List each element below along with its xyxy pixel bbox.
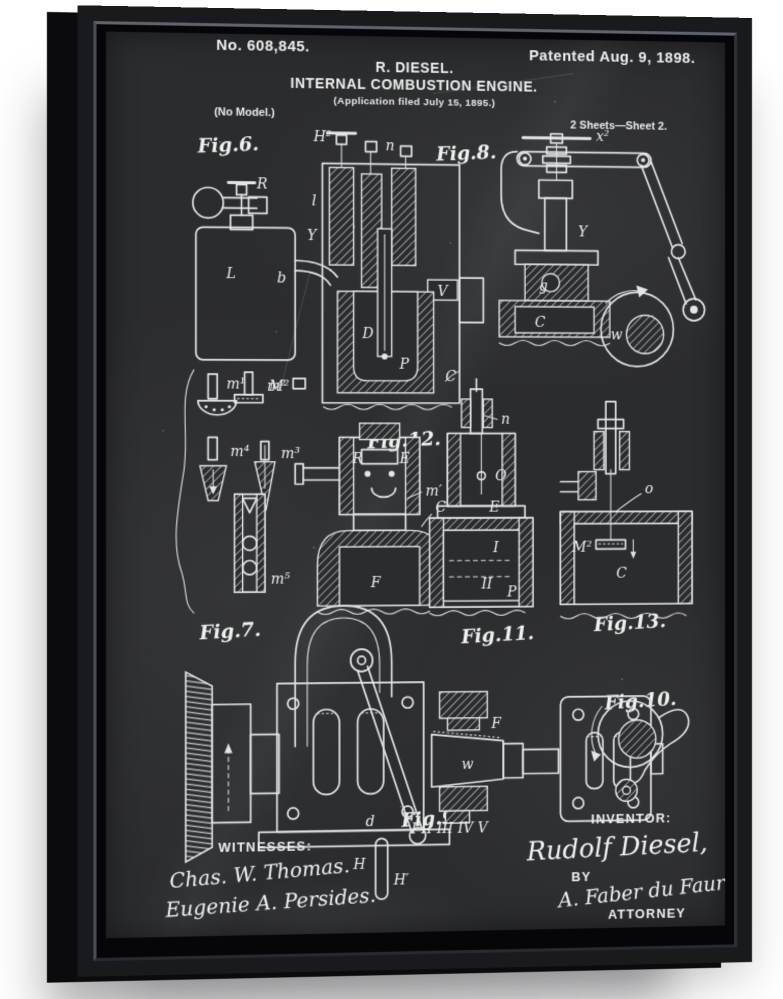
fig10-drawing (591, 700, 689, 801)
patent-number: No. 608,845. (216, 37, 310, 56)
fig13-part-o: o (645, 482, 653, 498)
fig8-part-g: g (539, 279, 548, 295)
fig11-part-E: E (488, 500, 499, 516)
patent-inventor-name: R. DIESEL. (375, 59, 453, 77)
fig6-part-D: D (361, 326, 373, 342)
fig13-drawing: o M² C (561, 401, 692, 619)
fig6-part-b: b (277, 271, 286, 287)
fig7-caption: Fig.7. (198, 618, 261, 644)
fig6-part-L: L (225, 266, 235, 282)
fig13-part-C: C (616, 566, 627, 582)
witnesses-heading: WITNESSES: (218, 839, 312, 856)
fig11-part-n: n (501, 411, 510, 427)
no-model-note: (No Model.) (214, 106, 275, 119)
fig7-drawing: m¹ m² m⁴ m³ (176, 370, 300, 613)
fig8-part-Y: Y (578, 225, 589, 241)
fig9-part-w: w (461, 756, 473, 772)
inventor-heading: INVENTOR: (591, 811, 671, 827)
chalkboard-canvas: No. 608,845. Patented Aug. 9, 1898. R. D… (106, 32, 725, 939)
fig11-part-II: II (480, 577, 492, 593)
fig9-part-H: H (352, 857, 366, 874)
fig11-part-O: O (495, 468, 507, 484)
fig7-part-m5: m⁵ (271, 572, 290, 588)
patent-title: INTERNAL COMBUSTION ENGINE. (290, 74, 537, 94)
by-label: BY (571, 869, 591, 884)
inventor-signature: Rudolf Diesel, (525, 828, 708, 868)
sheet-note: 2 Sheets—Sheet 2. (570, 119, 667, 132)
fig8-caption: Fig.8. (435, 141, 497, 166)
fig11-part-P: P (506, 584, 517, 600)
fig9-part-d: d (366, 814, 375, 830)
fig8-part-w: w (611, 327, 623, 343)
fig12-part-m-prime: m′ (426, 484, 443, 500)
fig6-part-P: P (399, 356, 410, 372)
fig9-part-numerals: I II III IV V (410, 820, 489, 837)
patent-application-line: (Application filed July 15, 1895.) (334, 95, 496, 109)
fig6-part-C: C (446, 369, 457, 385)
fig13-caption: Fig.13. (592, 610, 666, 637)
product-photo-background: No. 608,845. Patented Aug. 9, 1898. R. D… (0, 0, 783, 999)
fig6-part-n: n (386, 138, 395, 154)
fig7-part-m2: m² (267, 378, 286, 394)
fig6-part-R: R (256, 177, 268, 193)
fig9-part-H-prime: H′ (393, 872, 410, 889)
fig9-part-F: F (490, 716, 502, 732)
fig7-part-m1: m¹ (226, 376, 245, 392)
fig12-part-R: R (351, 451, 363, 467)
fig7-part-m4: m⁴ (230, 443, 250, 459)
fig12-part-E: E (399, 451, 410, 467)
fig8-part-C: C (535, 315, 546, 331)
fig6-part-l: l (312, 194, 317, 210)
fig12-part-F: F (370, 575, 382, 591)
fig8-part-x2: x² (596, 128, 610, 144)
fig6-caption: Fig.6. (196, 133, 259, 158)
patent-drawing-sheet: No. 608,845. Patented Aug. 9, 1898. R. D… (106, 32, 725, 939)
patent-date: Patented Aug. 9, 1898. (529, 47, 695, 67)
fig13-part-M2: M² (571, 540, 592, 556)
picture-frame: No. 608,845. Patented Aug. 9, 1898. R. D… (78, 5, 752, 977)
fig6-part-H2: H² (313, 129, 332, 146)
fig6-part-Y: Y (307, 228, 318, 244)
fig11-part-I: I (492, 540, 499, 556)
fig6-drawing: R L b S H² n (193, 127, 484, 410)
fig10-caption: Fig.10. (603, 688, 677, 715)
fig11-drawing: n O E (430, 379, 533, 616)
fig11-caption: Fig.11. (460, 622, 535, 649)
frame-inner-lip: No. 608,845. Patented Aug. 9, 1898. R. D… (93, 21, 737, 961)
attorney-label: ATTORNEY (608, 905, 686, 922)
fig7-part-m3: m³ (281, 445, 300, 461)
fig8-drawing: x² Y g (499, 127, 704, 367)
